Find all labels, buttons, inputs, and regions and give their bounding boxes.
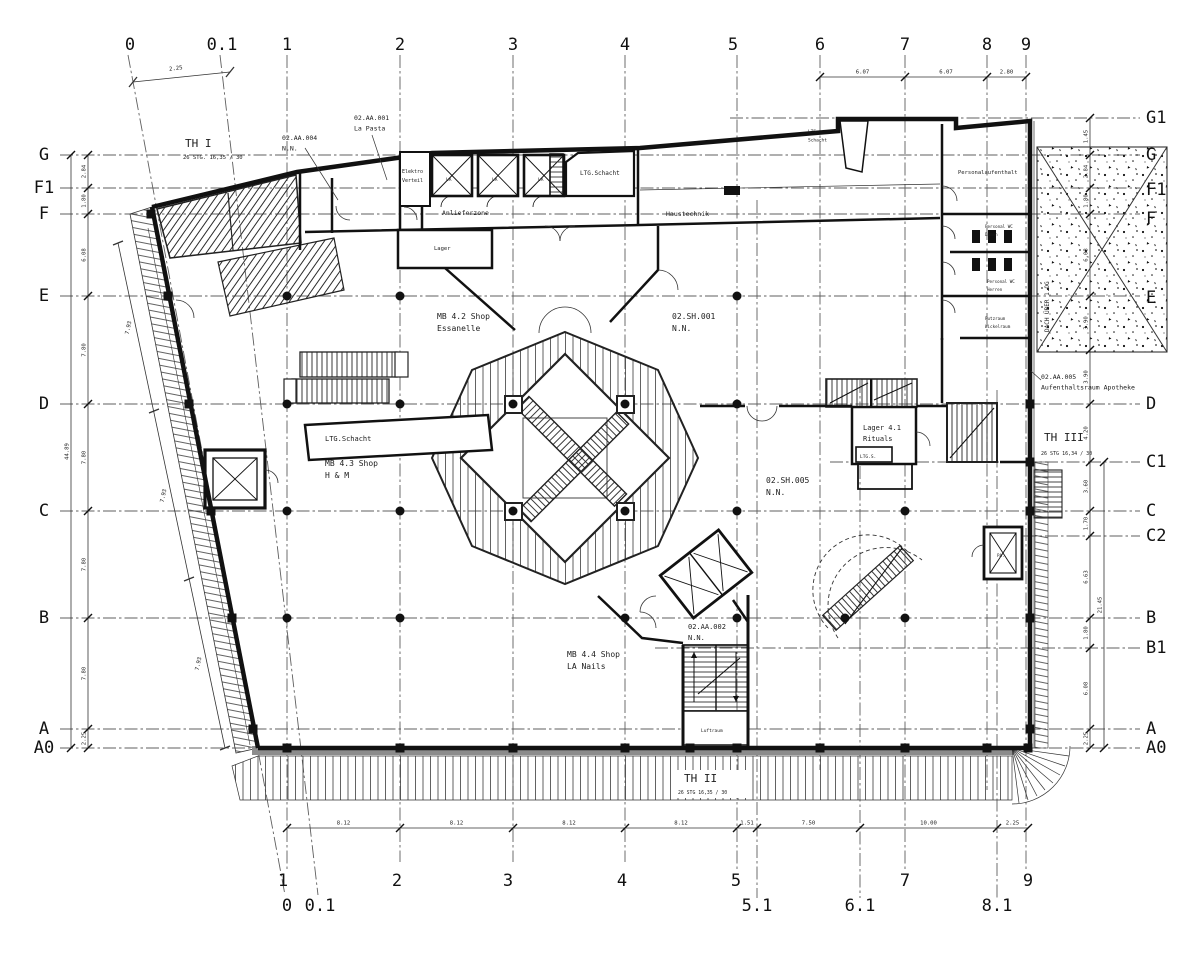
dimension-label: 10.00 — [920, 821, 937, 827]
floor-plan-svg: 00.1123456789123457900.15.16.18.1GF1FEDC… — [0, 0, 1200, 954]
room-label: Personal WC — [985, 224, 1013, 229]
dimension-label: 8.12 — [674, 821, 687, 827]
column-marker — [733, 400, 742, 409]
column-marker — [901, 614, 910, 623]
grid-row-label: G1 — [1146, 108, 1166, 128]
stair-rituals — [826, 379, 917, 407]
dimension-label: 7.93 — [195, 657, 204, 671]
grid-col-label: 9 — [1023, 871, 1033, 891]
room-label: H & M — [325, 471, 349, 480]
corner-fan — [1012, 746, 1070, 804]
room-label: 26 STG 16,35 / 30 — [678, 790, 727, 796]
room-label: Haustechnik — [666, 210, 709, 218]
dimension-label: 6.08 — [82, 248, 88, 262]
column-marker — [733, 744, 742, 753]
column-marker — [621, 744, 630, 753]
room-label: 02.AA.002 — [688, 623, 726, 631]
dimension-label: 7.80 — [82, 343, 88, 356]
column-marker — [733, 292, 742, 301]
column-marker — [147, 210, 156, 219]
dimension-chain: 44.89 — [65, 151, 76, 752]
elevator-rotated-aa002 — [660, 530, 752, 618]
room-label: DACH ÜBER 1.OG — [1044, 281, 1051, 332]
grid-row-label: B — [1146, 608, 1156, 628]
room-label: Essanelle — [437, 324, 481, 333]
room-label: PA. — [997, 553, 1005, 558]
dimension-label: 2.80 — [1000, 70, 1013, 76]
room-label: 02.SH.005 — [766, 476, 810, 485]
grid-col-label: 5 — [731, 871, 741, 891]
room-label: LTG.Schacht — [580, 170, 620, 177]
grid-row-label: C — [39, 501, 49, 521]
column-marker — [396, 744, 405, 753]
column-marker — [509, 400, 518, 409]
room-label: MB 4.2 Shop — [437, 312, 490, 321]
column-marker — [283, 400, 292, 409]
dimension-label: 7.80 — [82, 451, 88, 464]
dimension-label: 7.80 — [82, 667, 88, 680]
room-label: Personal WC — [987, 279, 1015, 284]
column-marker — [396, 292, 405, 301]
column-marker — [1024, 744, 1033, 753]
room-label: MB 4.4 Shop — [567, 650, 620, 659]
column-marker — [249, 725, 258, 734]
column-marker — [185, 400, 194, 409]
room-label: Aufenthaltsraum Apotheke — [1041, 384, 1135, 392]
column-marker — [283, 744, 292, 753]
room-label: Lager — [434, 246, 451, 252]
column-marker — [509, 744, 518, 753]
room-label: Elektro — [402, 169, 423, 175]
grid-col-label: 6.1 — [845, 896, 876, 916]
dimension-label: 2.25 — [1006, 821, 1019, 827]
grid-row-label: G — [1146, 145, 1156, 165]
grid-col-label: 7 — [900, 35, 910, 55]
grid-col-label: 8 — [982, 35, 992, 55]
shaft-ladder — [550, 154, 563, 196]
dimension-label: 44.89 — [65, 443, 71, 460]
room-label: TH III — [1044, 431, 1084, 444]
room-label: LA Nails — [567, 662, 606, 671]
dimension-label: 6.07 — [939, 70, 952, 76]
dimension-label: 7.93 — [160, 489, 169, 503]
column-marker — [621, 507, 630, 516]
dimension-label: 7.93 — [125, 321, 134, 335]
room-label: Verteil — [402, 178, 423, 184]
room-label: N.N. — [688, 634, 705, 642]
room-label: Luftraum — [701, 728, 723, 734]
grid-row-label: E — [1146, 288, 1156, 308]
grid-row-label: A0 — [34, 738, 54, 758]
grid-col-label: 4 — [620, 35, 630, 55]
grid-row-label: G — [39, 145, 49, 165]
room-label: Putzraum — [985, 316, 1006, 321]
grid-col-label: 5.1 — [742, 896, 773, 916]
grid-row-label: F — [39, 204, 49, 224]
dimension-label: 2.25 — [82, 732, 88, 745]
grid-col-label: 0 — [125, 35, 135, 55]
column-marker — [283, 292, 292, 301]
column-marker — [164, 292, 173, 301]
grid-col-label: 1 — [282, 35, 292, 55]
grid-row-label: B — [39, 608, 49, 628]
dimension-label: 2.84 — [82, 164, 88, 178]
column-marker — [621, 400, 630, 409]
grid-row-label: C1 — [1146, 452, 1166, 472]
dimension-label: 7.50 — [802, 821, 815, 827]
room-label: TH II — [684, 772, 717, 785]
room-label: LTG.Schacht — [325, 435, 371, 443]
dimension-label: 3.60 — [1084, 480, 1090, 493]
grid-row-label: B1 — [1146, 638, 1166, 658]
column-marker — [1026, 458, 1035, 467]
grid-col-label: 2 — [392, 871, 402, 891]
grid-col-label: 3 — [508, 35, 518, 55]
grid-col-label: 5 — [728, 35, 738, 55]
curved-stair — [813, 535, 922, 638]
stair-th1 — [157, 175, 344, 316]
grid-col-label: 0.1 — [207, 35, 238, 55]
wc-fixtures — [724, 186, 1012, 271]
dimension-label: 6.63 — [1084, 570, 1090, 583]
room-label: 02.SH.001 — [672, 312, 716, 321]
column-marker — [983, 744, 992, 753]
grid-col-label: 6 — [815, 35, 825, 55]
column-marker — [1026, 614, 1035, 623]
grid-row-label: D — [1146, 394, 1156, 414]
dimension-label: 1.70 — [1084, 517, 1090, 530]
room-label: LTG.S. — [860, 454, 876, 460]
dimension-chain: 6.076.072.80 — [816, 70, 1030, 82]
elevator-left — [205, 450, 278, 508]
dimension-label: 2.25 — [1084, 732, 1090, 745]
room-label: La Pasta — [354, 125, 385, 133]
room-label: N.N. — [766, 488, 785, 497]
column-marker — [733, 507, 742, 516]
dimension-label: 7.80 — [82, 558, 88, 571]
dimension-label: 1.80 — [1084, 626, 1090, 639]
room-label: LTG. — [808, 129, 819, 135]
grid-row-label: E — [39, 286, 49, 306]
room-label: 02.AA.005 — [1041, 373, 1076, 381]
column-marker — [1026, 400, 1035, 409]
dimension-label: 1.80 — [1084, 194, 1090, 207]
room-label: 02.AA.001 — [354, 114, 389, 122]
column-marker — [841, 614, 850, 623]
dimension-label: 2.84 — [1084, 164, 1090, 178]
dimension-label: 1.51 — [740, 821, 753, 827]
grid-col-label: 3 — [503, 871, 513, 891]
column-marker — [228, 614, 237, 623]
room-label: Herren — [987, 287, 1003, 292]
room-label: Rituals — [863, 435, 893, 443]
column-marker — [901, 744, 910, 753]
room-label: Lager 4.1 — [863, 424, 901, 432]
column-marker — [816, 744, 825, 753]
room-label: Wickelraum — [985, 324, 1011, 329]
grid-col-label: 4 — [617, 871, 627, 891]
dimension-label: 8.12 — [450, 821, 463, 827]
dimension-label: 4.20 — [1084, 426, 1090, 439]
dimension-label: 6.07 — [856, 70, 869, 76]
grid-row-label: F1 — [34, 178, 54, 198]
grid-row-label: C2 — [1146, 526, 1166, 546]
room-label: TH I — [185, 137, 212, 150]
column-marker — [686, 744, 695, 753]
elevator-bank-la — [432, 155, 564, 207]
grid-col-label: 2 — [395, 35, 405, 55]
grid-row-label: A — [1146, 719, 1156, 739]
room-label: Personalaufenthalt — [958, 170, 1018, 176]
dimension-chain: 8.128.128.128.121.517.5010.002.25 — [283, 821, 1032, 833]
room-label: LA — [538, 177, 544, 183]
grid-col-label: 1 — [278, 871, 288, 891]
atrium-octagon — [432, 332, 698, 584]
grid-col-label: 0 — [282, 896, 292, 916]
room-label: Anlieferzone — [442, 209, 489, 217]
room-label: LA — [446, 177, 452, 183]
escalator-hm — [284, 352, 408, 403]
grid-row-label: A — [39, 719, 49, 739]
room-label: 02.AA.004 — [282, 134, 317, 142]
dimension-label: 3.90 — [1084, 370, 1090, 383]
dimension-label: 8.12 — [337, 821, 350, 827]
column-marker — [396, 400, 405, 409]
dimension-label: 6.08 — [1084, 248, 1090, 262]
room-label: 26 STG. 16,35 / 30 — [183, 155, 243, 161]
column-marker — [1026, 507, 1035, 516]
column-marker — [396, 507, 405, 516]
grid-row-label: F1 — [1146, 180, 1166, 200]
column-marker — [207, 507, 216, 516]
room-label: N.N. — [672, 324, 691, 333]
dimension-label: 8.12 — [562, 821, 575, 827]
bottom-arcade — [232, 746, 1014, 800]
room-label: N.N. — [282, 145, 298, 153]
grid-col-label: 9 — [1021, 35, 1031, 55]
dimension-label: 21.45 — [1098, 597, 1104, 614]
column-marker — [283, 507, 292, 516]
column-marker — [396, 614, 405, 623]
room-label: 26 STG 16,34 / 30 — [1041, 451, 1092, 457]
dimension-label: 6.08 — [1084, 681, 1090, 695]
dimension-chain: 21.45 — [1098, 458, 1109, 752]
column-marker — [733, 614, 742, 623]
room-label: Schacht — [808, 138, 827, 144]
grid-row-label: D — [39, 394, 49, 414]
grid-row-label: F — [1146, 209, 1156, 229]
grid-row-label: C — [1146, 501, 1156, 521]
dimension-label: 1.80 — [82, 194, 88, 207]
column-marker — [509, 507, 518, 516]
room-label: MB 4.3 Shop — [325, 459, 378, 468]
room-label: LA — [492, 177, 498, 183]
column-marker — [621, 614, 630, 623]
floor-plan-canvas: 00.1123456789123457900.15.16.18.1GF1FEDC… — [0, 0, 1200, 954]
grid-col-label: 7 — [900, 871, 910, 891]
grid-row-label: A0 — [1146, 738, 1166, 758]
roof-stipple-block — [1037, 147, 1167, 352]
column-marker — [1026, 725, 1035, 734]
grid-col-label: 0.1 — [305, 896, 336, 916]
dimension-chain: 2.841.806.087.807.807.807.802.25 — [82, 151, 93, 752]
dimension-label: 1.45 — [1084, 130, 1090, 143]
dimension-label: 3.90 — [1084, 316, 1090, 329]
column-marker — [283, 614, 292, 623]
room-label: Damen — [985, 232, 998, 237]
column-marker — [901, 507, 910, 516]
right-facade-strip — [1035, 462, 1048, 748]
grid-col-label: 8.1 — [982, 896, 1013, 916]
dimension-label: 2.25 — [169, 65, 183, 73]
